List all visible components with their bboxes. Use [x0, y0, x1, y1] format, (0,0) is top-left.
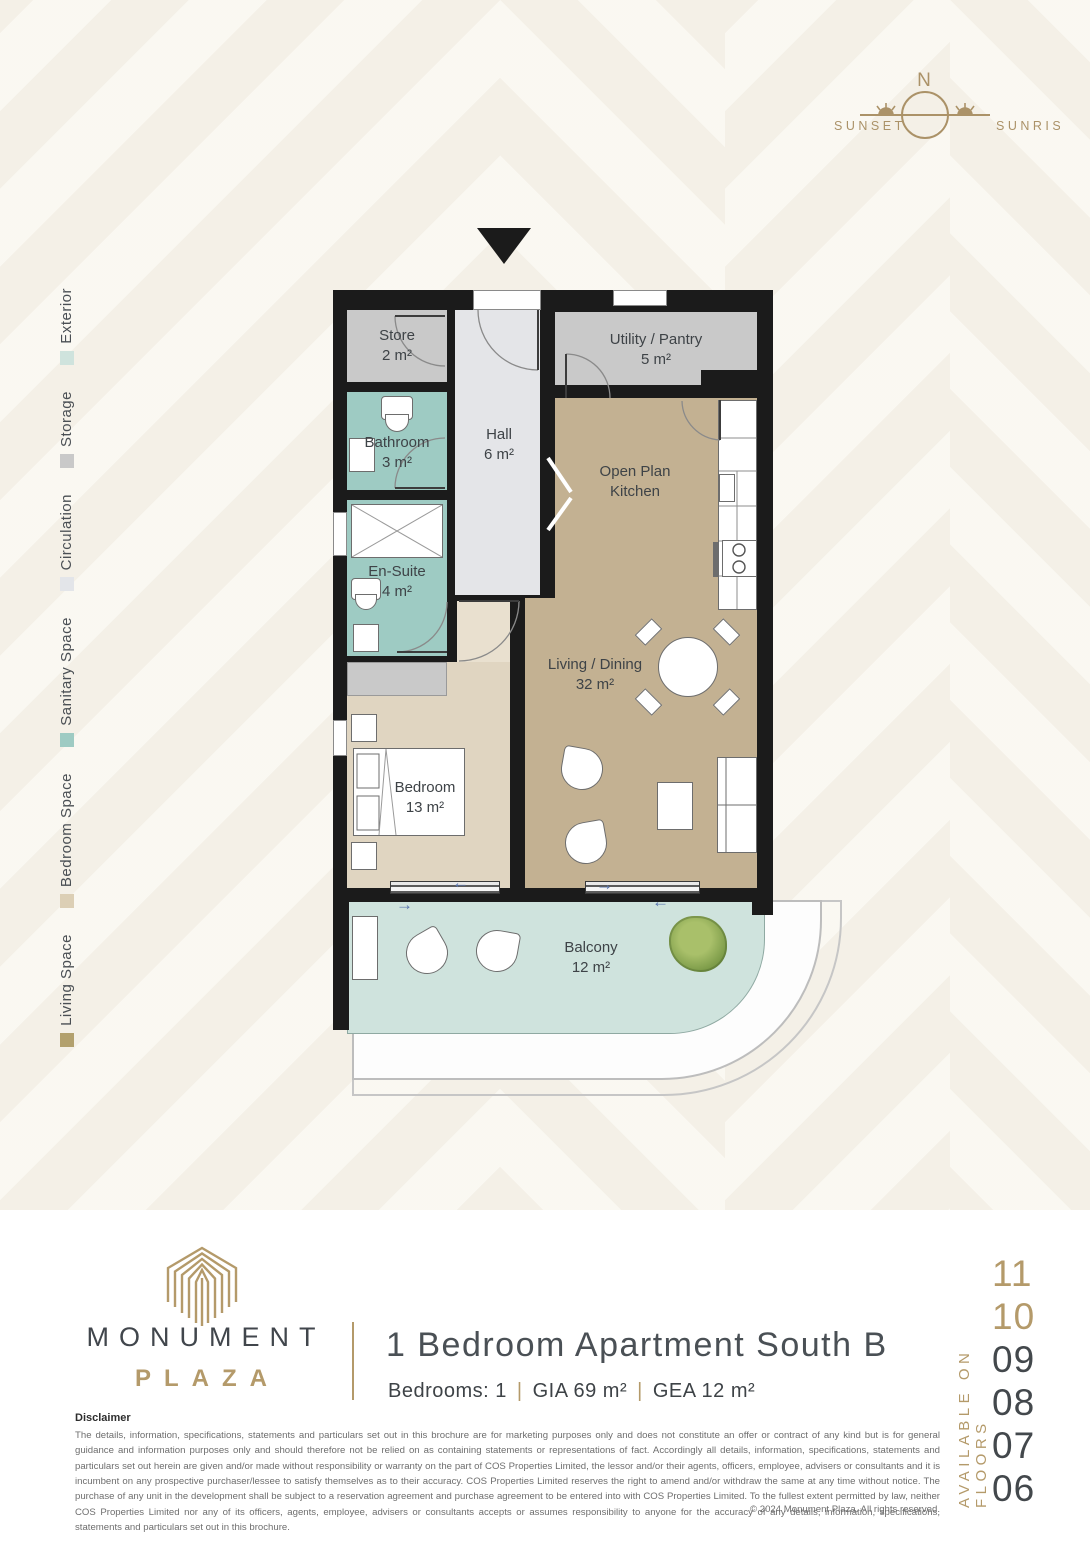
legend-label: Bedroom Space: [58, 773, 75, 887]
legend-label: Storage: [58, 391, 75, 447]
floor-number: 06: [992, 1467, 1035, 1510]
room-area: 4 m²: [368, 582, 426, 602]
legend-swatch-sanitary: [60, 733, 74, 747]
disclaimer-body: The details, information, specifications…: [75, 1428, 940, 1535]
hall-label: Hall 6 m²: [484, 425, 514, 466]
brand-subname: PLAZA: [55, 1365, 347, 1393]
ensuite-door-arc: [397, 602, 447, 652]
floor-availability-list: 11 10 09 08 07 06: [992, 1252, 1035, 1510]
gea-value: GEA 12 m²: [653, 1380, 755, 1402]
separator: |: [627, 1380, 653, 1402]
legend-label: Exterior: [58, 288, 75, 344]
legend-item-exterior: Exterior: [58, 288, 75, 365]
kitchen-opening-splay: [548, 458, 571, 492]
legend-item-storage: Storage: [58, 391, 75, 468]
room-name: Bedroom: [395, 778, 456, 798]
available-on-floors-label: AVAILABLE ON FLOORS: [956, 1258, 990, 1508]
slide-direction-arrow-icon: →: [396, 896, 413, 913]
compass-icon: N SUNSET SUNRISE: [820, 58, 1060, 168]
floor-number: 09: [992, 1338, 1035, 1381]
entry-door-arc: [478, 310, 538, 370]
sunrise-label: SUNRISE: [996, 119, 1060, 133]
room-area: 13 m²: [395, 798, 456, 818]
wall-segment: [333, 902, 349, 1030]
bedrooms-count: Bedrooms: 1: [388, 1380, 507, 1402]
wall-segment: [752, 902, 773, 915]
brand-block: MONUMENT PLAZA: [55, 1322, 347, 1393]
monument-plaza-logo: [152, 1240, 252, 1330]
room-name: Living / Dining: [548, 655, 642, 675]
chevron-pattern: [950, 0, 1090, 1210]
legend-item-living: Living Space: [58, 934, 75, 1047]
room-name: Balcony: [564, 938, 617, 958]
room-name: Kitchen: [600, 482, 671, 502]
brand-name: MONUMENT: [55, 1322, 347, 1353]
legend-swatch-exterior: [60, 351, 74, 365]
room-name: Store: [379, 326, 415, 346]
room-area: 32 m²: [548, 675, 642, 695]
living-label: Living / Dining 32 m²: [548, 655, 642, 696]
legend-item-circulation: Circulation: [58, 494, 75, 591]
legend-item-bedroom: Bedroom Space: [58, 773, 75, 908]
floor-number: 08: [992, 1381, 1035, 1424]
ensuite-label: En-Suite 4 m²: [368, 562, 426, 603]
room-name: Bathroom: [364, 433, 429, 453]
bedroom-label: Bedroom 13 m²: [395, 778, 456, 819]
kitchen-label: Open Plan Kitchen: [600, 462, 671, 503]
legend-swatch-storage: [60, 454, 74, 468]
bedroom-door-arc: [459, 601, 519, 661]
compass-north-label: N: [917, 70, 933, 91]
brochure-page: N SUNSET SUNRISE Exterior Storage Circul…: [0, 0, 1090, 1553]
kitchen-opening-splay: [548, 498, 571, 530]
disclaimer: Disclaimer The details, information, spe…: [75, 1412, 940, 1535]
gia-value: GIA 69 m²: [533, 1380, 628, 1402]
disclaimer-heading: Disclaimer: [75, 1412, 940, 1424]
legend-swatch-bedroom: [60, 894, 74, 908]
floor-number: 11: [992, 1252, 1035, 1295]
room-name: Utility / Pantry: [610, 330, 703, 350]
store-label: Store 2 m²: [379, 326, 415, 367]
room-area: 6 m²: [484, 445, 514, 465]
entrance-arrow-icon: [477, 228, 531, 264]
floor-number: 10: [992, 1295, 1035, 1338]
room-name: Open Plan: [600, 462, 671, 482]
utility-label: Utility / Pantry 5 m²: [610, 330, 703, 371]
copyright: © 2024 Monument Plaza. All rights reserv…: [750, 1504, 940, 1515]
slide-direction-arrow-icon: ←: [652, 893, 669, 910]
separator: |: [507, 1380, 533, 1402]
legend-swatch-circulation: [60, 577, 74, 591]
legend-item-sanitary: Sanitary Space: [58, 617, 75, 747]
floor-plan: Store 2 m² Utility / Pantry 5 m² Bathroo…: [333, 290, 773, 902]
sunset-label: SUNSET: [834, 119, 906, 133]
bathroom-label: Bathroom 3 m²: [364, 433, 429, 474]
balcony-planter: [352, 916, 378, 980]
balcony-label: Balcony 12 m²: [564, 938, 617, 979]
gold-divider: [352, 1322, 354, 1400]
room-name: Hall: [484, 425, 514, 445]
room-name: En-Suite: [368, 562, 426, 582]
floor-number: 07: [992, 1424, 1035, 1467]
balcony-chair: [473, 927, 522, 976]
slide-direction-arrow-icon: →: [596, 876, 613, 893]
room-area: 12 m²: [564, 958, 617, 978]
room-area: 3 m²: [364, 453, 429, 473]
room-type-legend: Exterior Storage Circulation Sanitary Sp…: [58, 288, 75, 1047]
slide-direction-arrow-icon: ←: [452, 874, 469, 891]
room-area: 2 m²: [379, 346, 415, 366]
legend-label: Sanitary Space: [58, 617, 75, 726]
sunset-sun-icon: [877, 103, 895, 115]
kitchen-door-arc: [682, 401, 720, 440]
room-area: 5 m²: [610, 350, 703, 370]
legend-swatch-living: [60, 1033, 74, 1047]
utility-door-arc: [566, 354, 610, 398]
legend-label: Living Space: [58, 934, 75, 1026]
unit-specs: Bedrooms: 1|GIA 69 m²|GEA 12 m²: [388, 1380, 755, 1403]
sunrise-sun-icon: [956, 103, 974, 115]
balcony-chair: [398, 924, 455, 981]
unit-title: 1 Bedroom Apartment South B: [386, 1326, 888, 1365]
legend-label: Circulation: [58, 494, 75, 570]
